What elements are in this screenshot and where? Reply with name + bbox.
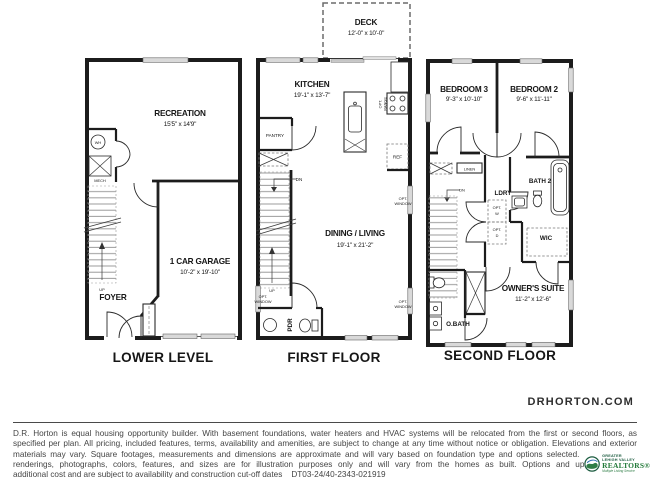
deck-label: DECK [355,18,378,27]
wic-label: WIC [540,235,553,242]
garage-door [163,334,197,339]
up-label: UP [99,287,105,292]
sink-icon [264,319,277,332]
door-arc [134,183,158,207]
garage-door [201,334,235,339]
bedroom3-label: BEDROOM 3 [440,85,488,94]
plan-lower-level: WH MECH UP RECREATION 15'5" x 14'9" 1 CA… [84,58,240,365]
owners-suite-label: OWNER'S SUITE [502,284,565,293]
opt-w-label: W [495,211,499,216]
opt-window-label: WINDOW [394,201,411,206]
window [143,58,188,63]
realtors-logo-text: GREATER LEHIGH VALLEY REALTORS® Multiple… [602,454,650,473]
window [266,58,300,63]
floorplan-image: WH MECH UP RECREATION 15'5" x 14'9" 1 CA… [0,0,650,478]
pantry-label: PANTRY [266,133,284,138]
dining-label: DINING / LIVING [325,229,385,238]
opt-d-label: D [496,233,499,238]
door-arc [497,133,521,157]
ref-label: REF [393,155,402,160]
toilet-icon [534,191,542,195]
bedroom3-dims: 9'-3" x 10'-10" [446,96,482,103]
door-arc [116,155,130,167]
sliding-door [363,57,396,60]
window [569,68,574,92]
disclaimer-text: D.R. Horton is equal housing opportunity… [13,429,637,478]
wh-label: WH [95,140,102,145]
window [408,186,413,214]
window [408,288,413,314]
kitchen-dims: 19'-1" x 13'-7" [294,92,330,99]
floorplans-svg: WH MECH UP RECREATION 15'5" x 14'9" 1 CA… [0,0,650,392]
bath2-label: BATH 2 [529,178,552,185]
opt-w-label: OPT. [493,205,502,210]
range-icon [387,93,408,114]
linen-label: LINEN [464,167,476,172]
dn-label: DN [296,177,303,182]
foyer-label: FOYER [99,293,126,302]
window [445,342,471,347]
toilet-icon [312,320,318,331]
bedroom2-dims: 9'-6" x 11'-11" [516,96,551,103]
deck-dims: 12'-0" x 10'-0" [348,30,384,37]
sliding-door [331,60,364,63]
disclaimer-line: D.R. Horton is equal housing opportunity… [13,429,637,439]
window [452,59,472,64]
opt-range-label: RANGE [383,97,388,111]
window [372,336,398,341]
opt-d-label: OPT. [493,227,502,232]
disclaimer-line: additional cost and are subject to avail… [13,470,637,478]
window [506,342,526,347]
door-arc [466,202,486,222]
door-arc [536,262,558,284]
dining-dims: 19'-1" x 21'-2" [337,242,373,249]
disclaimer-line: specified per plan. All pricing, include… [13,439,637,449]
opt-window-label: WINDOW [394,304,411,309]
garage-label: 1 CAR GARAGE [170,257,231,266]
recreation-label: RECREATION [154,109,206,118]
first-floor-title: FIRST FLOOR [287,350,380,365]
door-arc [437,127,461,152]
vanity-icon [430,302,442,315]
realtors-logo: GREATER LEHIGH VALLEY REALTORS® Multiple… [584,450,650,478]
counter [391,62,409,92]
plan-second-floor: BEDROOM 3 9'-3" x 10'-10" BEDROOM 2 9'-6… [426,59,573,363]
pantry-door-arc [292,126,316,150]
realtors-logo-emblem [584,451,600,477]
kitchen-island [344,92,366,152]
opt-window-label: WINDOW [254,299,271,304]
pdr-door-arc [292,283,317,308]
window [303,58,318,63]
disclaimer-line: renderings, photographs, colors, feature… [13,460,637,470]
kitchen-label: KITCHEN [295,80,330,89]
second-floor-title: SECOND FLOOR [444,348,556,363]
plan-first-floor: DECK 12'-0" x 10'-0" KITCHEN 19'-1" x 13… [254,3,412,365]
mech-label: MECH [94,178,106,183]
disclaimer-line: materials may vary. Square footages, mea… [13,450,637,460]
lower-level-title: LOWER LEVEL [113,350,214,365]
window [569,280,574,310]
window [345,336,367,341]
door-arc [466,222,486,242]
owners-suite-dims: 11'-2" x 12'-6" [515,296,551,303]
obath-label: O.BATH [446,321,470,328]
bedroom2-label: BEDROOM 2 [510,85,558,94]
vanity-icon [430,317,442,330]
divider-line [13,422,637,423]
pdr-label: PDR [287,318,294,332]
door-arc [535,132,559,157]
dn-label: DN [459,188,465,193]
window [426,94,431,122]
garage-dims: 10'-2" x 19'-10" [180,269,220,276]
up-label: UP [269,288,275,293]
window [532,342,555,347]
logo-tagline: Multiple Listing Service [602,470,650,473]
door-arc [116,141,130,155]
window [520,59,542,64]
drhorton-website-text: DRHORTON.COM [528,396,634,408]
recreation-dims: 15'5" x 14'9" [164,121,196,128]
